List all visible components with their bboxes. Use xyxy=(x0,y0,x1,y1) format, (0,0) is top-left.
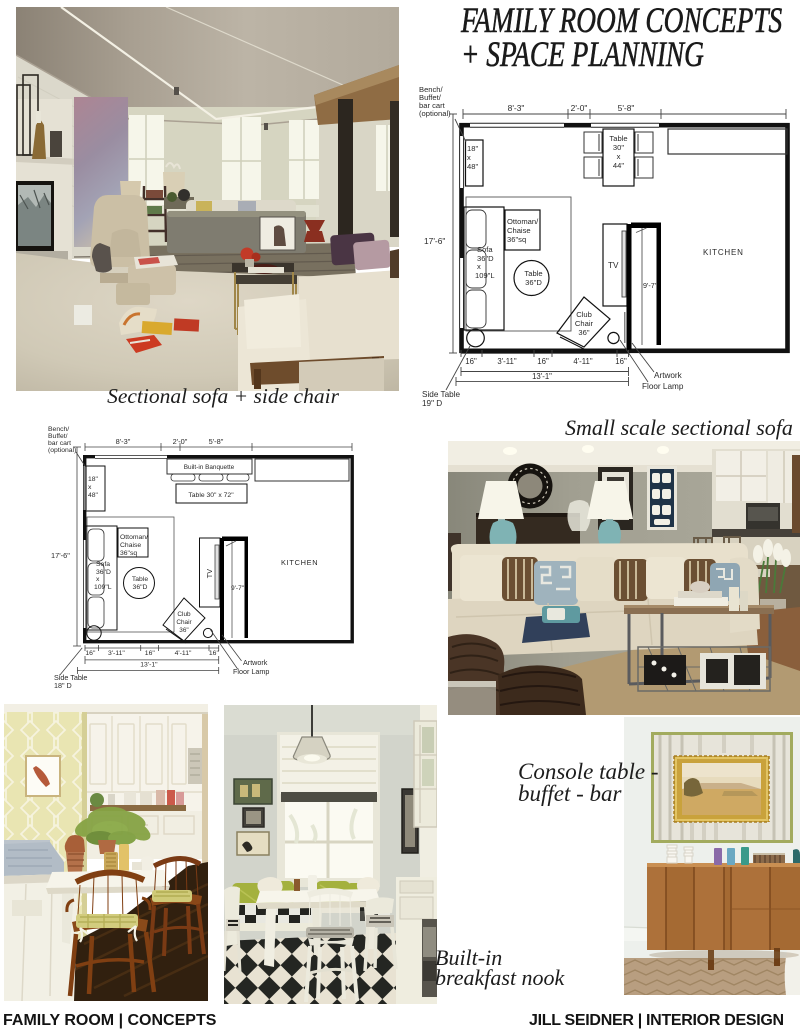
svg-text:9'-7": 9'-7" xyxy=(231,585,245,592)
svg-text:TV: TV xyxy=(608,261,619,270)
svg-text:Side Table: Side Table xyxy=(422,390,461,399)
svg-text:48": 48" xyxy=(467,162,478,171)
svg-text:Table: Table xyxy=(132,576,148,583)
svg-text:Built-in Banquette: Built-in Banquette xyxy=(184,464,235,471)
svg-text:36"D: 36"D xyxy=(133,584,148,591)
svg-text:Floor Lamp: Floor Lamp xyxy=(642,382,684,391)
svg-text:36"sq: 36"sq xyxy=(120,550,137,557)
svg-text:x: x xyxy=(617,152,621,161)
svg-text:36": 36" xyxy=(578,328,589,337)
svg-text:Chair: Chair xyxy=(575,319,594,328)
svg-text:30": 30" xyxy=(613,143,624,152)
svg-text:(optional): (optional) xyxy=(48,447,76,454)
svg-text:Artwork: Artwork xyxy=(654,371,683,380)
svg-text:16": 16" xyxy=(85,650,96,657)
svg-text:Sofa: Sofa xyxy=(96,561,110,568)
svg-text:Sofa: Sofa xyxy=(477,245,493,254)
svg-text:(optional): (optional) xyxy=(419,109,451,118)
svg-text:16": 16" xyxy=(209,650,220,657)
svg-text:Chair: Chair xyxy=(176,619,192,626)
svg-text:13'-1": 13'-1" xyxy=(140,662,158,669)
svg-text:3'-11": 3'-11" xyxy=(497,357,517,366)
svg-text:109"L: 109"L xyxy=(475,271,495,280)
svg-text:17'-6": 17'-6" xyxy=(424,236,445,246)
svg-text:18" D: 18" D xyxy=(54,681,72,690)
svg-text:Ottoman/: Ottoman/ xyxy=(507,217,539,226)
svg-text:18": 18" xyxy=(88,476,99,483)
svg-text:Table 30" x 72": Table 30" x 72" xyxy=(188,492,234,499)
svg-text:8'-3": 8'-3" xyxy=(508,103,525,113)
svg-text:5'-8": 5'-8" xyxy=(618,103,635,113)
svg-text:44": 44" xyxy=(613,161,624,170)
svg-text:16": 16" xyxy=(615,357,627,366)
svg-text:Artwork: Artwork xyxy=(243,658,268,667)
svg-text:x: x xyxy=(96,576,100,583)
svg-text:x: x xyxy=(467,153,471,162)
svg-text:48": 48" xyxy=(88,492,99,499)
svg-text:Table: Table xyxy=(524,269,542,278)
svg-text:36": 36" xyxy=(179,627,188,634)
svg-text:3'-11": 3'-11" xyxy=(108,650,125,657)
svg-text:TV: TV xyxy=(205,569,214,578)
svg-text:Table: Table xyxy=(609,134,627,143)
svg-text:Bench/: Bench/ xyxy=(48,426,69,433)
svg-text:KITCHEN: KITCHEN xyxy=(703,248,744,257)
svg-text:Chaise: Chaise xyxy=(120,542,141,549)
svg-text:bar cart: bar cart xyxy=(48,440,71,447)
svg-text:KITCHEN: KITCHEN xyxy=(281,558,318,567)
svg-text:Club: Club xyxy=(576,310,592,319)
svg-text:Floor Lamp: Floor Lamp xyxy=(233,667,269,676)
svg-text:36"D: 36"D xyxy=(525,278,542,287)
svg-text:8'-3": 8'-3" xyxy=(116,437,131,446)
svg-text:4'-11": 4'-11" xyxy=(573,357,593,366)
svg-text:4'-11": 4'-11" xyxy=(175,650,192,657)
svg-text:36"D: 36"D xyxy=(96,569,111,576)
svg-text:Club: Club xyxy=(177,611,191,618)
svg-text:13'-1": 13'-1" xyxy=(532,372,552,381)
svg-text:19" D: 19" D xyxy=(422,399,442,408)
svg-text:Buffet/: Buffet/ xyxy=(48,433,68,440)
svg-text:x: x xyxy=(88,484,92,491)
svg-text:2'-0": 2'-0" xyxy=(571,103,588,113)
svg-text:16": 16" xyxy=(145,650,156,657)
svg-text:17'-6": 17'-6" xyxy=(51,551,70,560)
svg-text:5'-8": 5'-8" xyxy=(209,437,224,446)
svg-text:2'-0": 2'-0" xyxy=(173,437,188,446)
svg-text:x: x xyxy=(477,262,481,271)
svg-text:9'-7": 9'-7" xyxy=(643,281,658,290)
svg-text:16": 16" xyxy=(537,357,549,366)
svg-text:18": 18" xyxy=(467,144,478,153)
svg-text:16": 16" xyxy=(465,357,477,366)
svg-text:109"L: 109"L xyxy=(94,584,112,591)
svg-text:36"sq: 36"sq xyxy=(507,235,526,244)
svg-text:Ottoman/: Ottoman/ xyxy=(120,534,148,541)
svg-text:Chaise: Chaise xyxy=(507,226,531,235)
